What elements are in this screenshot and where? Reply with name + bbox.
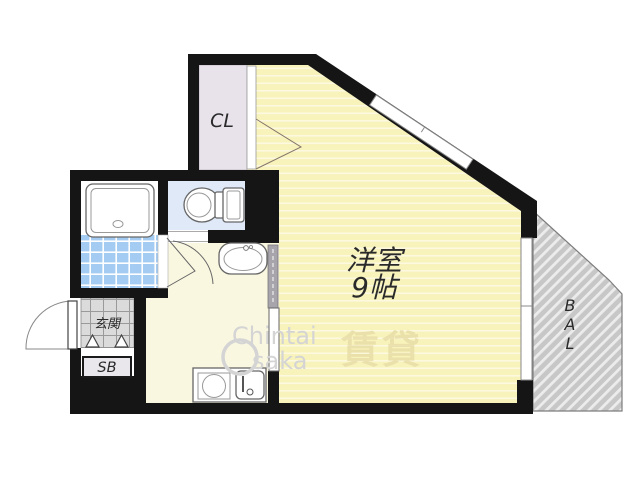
watermark-line2: saka [252, 347, 307, 375]
watermark-stamp: 賃貸 [340, 328, 423, 372]
washbasin [219, 243, 267, 274]
floor-plan: Chintai saka 賃貸 CL 洋室 9帖 B A L 玄関 SB [0, 0, 640, 480]
entrance-label: 玄関 [94, 317, 122, 332]
entrance-threshold [81, 348, 134, 357]
closet-label: CL [210, 110, 234, 132]
entrance-door-arc [26, 301, 72, 349]
watermark-line1: Chintai [232, 322, 317, 350]
balcony-label-a: A [564, 315, 576, 334]
shoe-box-label: SB [97, 360, 116, 376]
entrance-door [26, 301, 77, 349]
toilet [184, 188, 244, 222]
balcony-floor [533, 211, 622, 411]
faucet-icon [244, 246, 249, 251]
bath-tile-floor [81, 235, 158, 288]
balcony-label-b: B [565, 296, 576, 315]
floorplan-page: Chintai saka 賃貸 CL 洋室 9帖 B A L 玄関 SB [0, 0, 640, 480]
main-room-size-label: 9帖 [351, 271, 401, 304]
balcony-label-l: L [566, 334, 575, 353]
balcony-window [521, 238, 532, 380]
bathtub [86, 184, 154, 237]
closet-door [247, 66, 256, 169]
